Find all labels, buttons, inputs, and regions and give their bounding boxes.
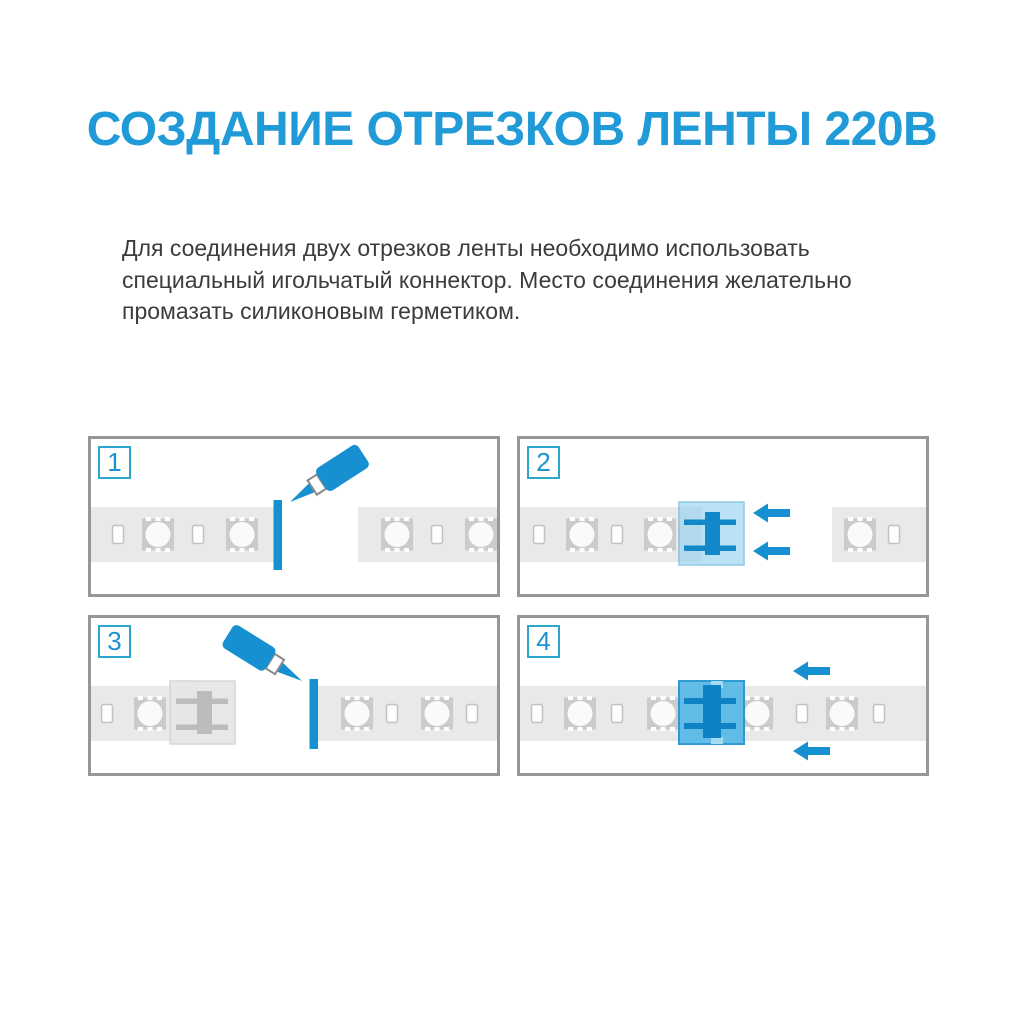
step-panel-2: 2: [517, 436, 929, 597]
connector-body: [197, 691, 212, 734]
led-chip: [741, 696, 773, 731]
steps-grid: 1 2: [88, 436, 929, 776]
needle-connector: [679, 681, 744, 744]
step-number-badge: 2: [527, 446, 560, 479]
resistor: [113, 526, 124, 544]
step-3-illustration: [88, 615, 500, 776]
resistor: [387, 705, 398, 723]
resistor: [193, 526, 204, 544]
step-1-illustration: [88, 436, 500, 597]
led-chip: [142, 517, 174, 552]
step-2-illustration: [517, 436, 929, 597]
led-chip: [465, 517, 497, 552]
led-chip: [421, 696, 453, 731]
connector-body: [703, 685, 721, 738]
resistor: [889, 526, 900, 544]
needle-connector: [679, 502, 744, 565]
resistor: [612, 526, 623, 544]
resistor: [467, 705, 478, 723]
led-chip: [644, 517, 676, 552]
led-chip: [826, 696, 858, 731]
cut-end-seal: [274, 500, 283, 570]
step-number-badge: 3: [98, 625, 131, 658]
attached-connector: [170, 681, 235, 744]
resistor: [432, 526, 443, 544]
led-chip: [134, 696, 166, 731]
step-number-badge: 4: [527, 625, 560, 658]
step-4-illustration: [517, 615, 929, 776]
resistor: [102, 705, 113, 723]
resistor: [797, 705, 808, 723]
resistor: [874, 705, 885, 723]
resistor: [534, 526, 545, 544]
connector-latch: [711, 737, 723, 744]
led-chip: [647, 696, 679, 731]
step-number-badge: 1: [98, 446, 131, 479]
page-title: СОЗДАНИЕ ОТРЕЗКОВ ЛЕНТЫ 220В: [0, 102, 1024, 157]
led-chip: [341, 696, 373, 731]
connector-body: [705, 512, 720, 555]
led-chip: [564, 696, 596, 731]
intro-line: Для соединения двух отрезков ленты необх…: [122, 233, 852, 265]
led-chip: [844, 517, 876, 552]
resistor: [612, 705, 623, 723]
led-chip: [566, 517, 598, 552]
step-panel-4: 4: [517, 615, 929, 776]
resistor: [532, 705, 543, 723]
led-chip: [381, 517, 413, 552]
cut-end-seal: [310, 679, 319, 749]
intro-text: Для соединения двух отрезков ленты необх…: [122, 233, 852, 328]
led-chip: [226, 517, 258, 552]
step-panel-3: 3: [88, 615, 500, 776]
step-panel-1: 1: [88, 436, 500, 597]
intro-line: промазать силиконовым герметиком.: [122, 296, 852, 328]
intro-line: специальный игольчатый коннектор. Место …: [122, 265, 852, 297]
